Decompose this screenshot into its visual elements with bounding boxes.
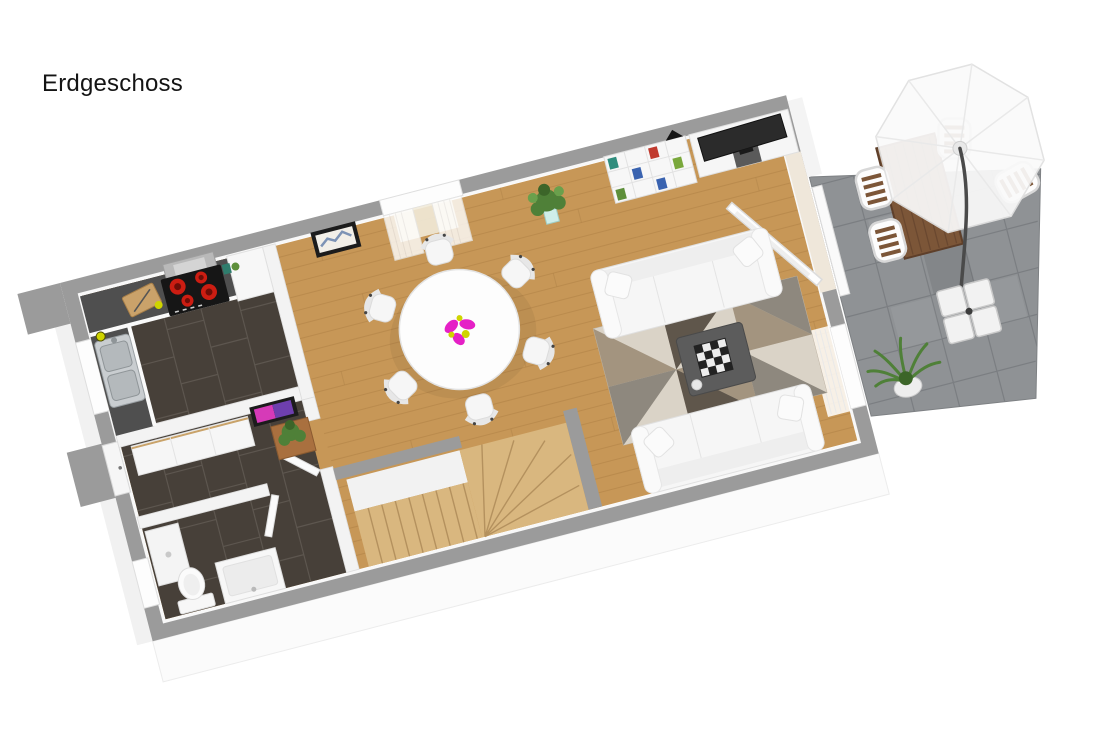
floor-plan-canvas: Erdgeschoss (0, 0, 1100, 731)
floor-plan-3d (0, 0, 1100, 731)
building (17, 91, 903, 692)
plan (17, 37, 1100, 693)
